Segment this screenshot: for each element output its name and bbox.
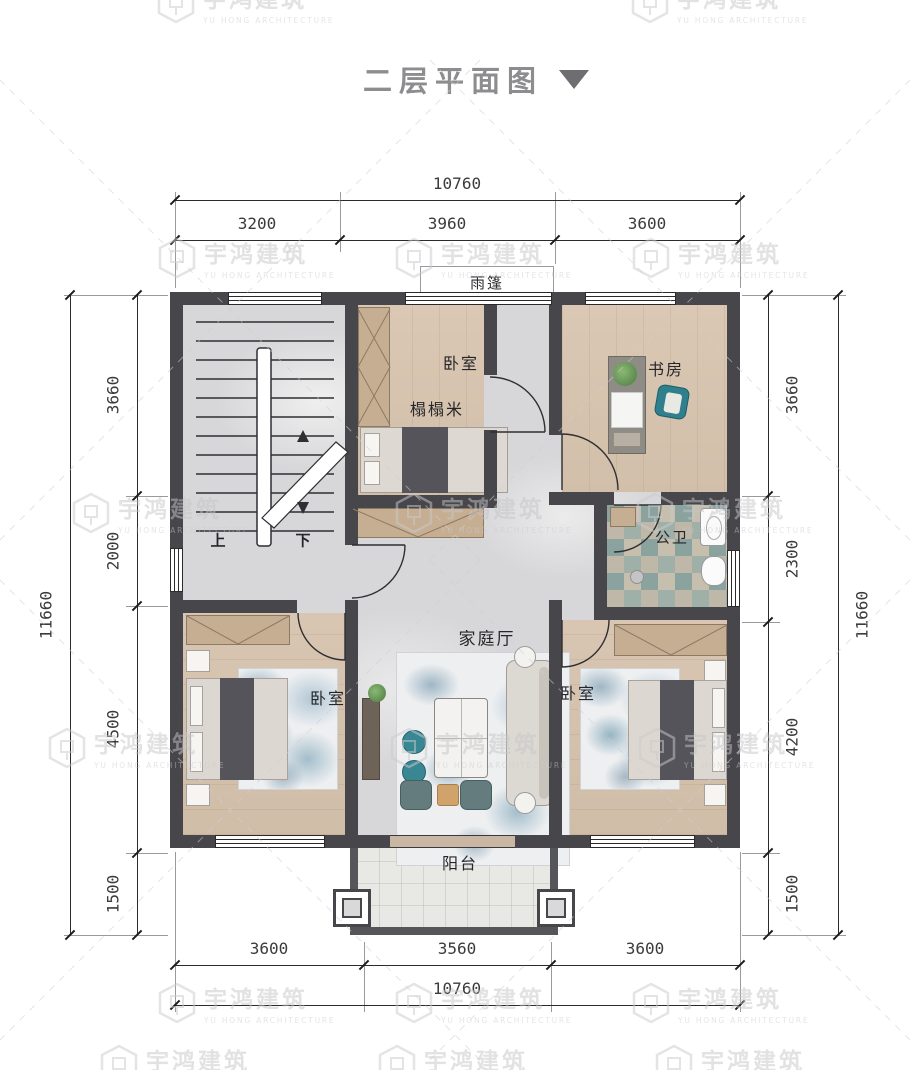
bathroom-sink <box>700 508 726 546</box>
wall-interior <box>549 600 562 835</box>
dim-label: 4500 <box>104 710 123 749</box>
watermark-subtitle: YU HONG ARCHITECTURE <box>678 271 809 280</box>
desk-plant <box>613 362 637 386</box>
dim-label: 3660 <box>104 376 123 415</box>
extension-line <box>742 496 780 497</box>
desk-tray <box>613 432 641 447</box>
window <box>170 548 183 592</box>
watermark-name: 宇鸿建筑 <box>701 1042 832 1070</box>
extension-line <box>340 192 341 252</box>
sofa <box>506 660 554 806</box>
tv-console <box>362 698 380 780</box>
watermark: 宇鸿建筑YU HONG ARCHITECTURE <box>158 235 335 280</box>
watermark: 宇鸿建筑YU HONG ARCHITECTURE <box>632 980 809 1025</box>
shower-head <box>630 570 644 584</box>
yuhong-logo-icon <box>632 982 670 1024</box>
toilet <box>701 556 726 586</box>
extension-line <box>742 295 846 296</box>
watermark: 宇鸿建筑YU HONG ARCHITECTURE <box>158 980 335 1025</box>
tatami-bed-pillow <box>364 433 380 457</box>
armchair <box>460 780 492 810</box>
right-bed-blanket <box>660 680 694 780</box>
nightstand <box>186 784 210 806</box>
watermark-name: 宇鸿建筑 <box>424 1042 555 1070</box>
watermark: 宇鸿建筑YU HONG ARCHITECTURE <box>395 980 572 1025</box>
yuhong-logo-icon <box>655 1044 693 1070</box>
desk-papers <box>611 392 643 428</box>
room-label-study: 书房 <box>648 356 684 380</box>
watermark-name: 宇鸿建筑 <box>677 0 808 14</box>
extension-line <box>364 942 365 1012</box>
watermark: 宇鸿建筑YU HONG ARCHITECTURE <box>655 1042 832 1070</box>
balcony-column-core <box>546 898 566 918</box>
room-label-bedroom-right: 卧室 <box>560 680 596 704</box>
hall-closet <box>352 508 484 538</box>
dim-label: 1500 <box>104 875 123 914</box>
wall-interior <box>484 430 497 495</box>
stair-label-down: 下 <box>295 530 312 551</box>
plant <box>368 684 386 702</box>
balcony-wall <box>350 927 558 935</box>
dim-label: 3600 <box>250 939 289 958</box>
watermark-name: 宇鸿建筑 <box>146 1042 277 1070</box>
extension-line <box>742 853 780 854</box>
pouf <box>402 730 426 754</box>
wall-interior <box>549 305 562 435</box>
dimension-line <box>175 200 740 201</box>
right-bedroom-wardrobe <box>614 624 727 656</box>
dimension-line <box>175 965 740 966</box>
watermark-name: 宇鸿建筑 <box>204 980 335 1014</box>
room-label-balcony: 阳台 <box>442 850 478 874</box>
dim-label-bottom-total: 10760 <box>433 979 481 998</box>
nightstand <box>704 660 726 682</box>
wall-interior <box>183 600 297 613</box>
wall-bathroom-south <box>594 607 740 620</box>
window <box>405 292 552 305</box>
extension-line <box>742 935 846 936</box>
window <box>727 550 740 607</box>
side-table <box>514 792 536 814</box>
pillow <box>190 732 203 772</box>
room-label-family-hall: 家庭厅 <box>459 625 516 650</box>
watermark-subtitle: YU HONG ARCHITECTURE <box>677 16 808 25</box>
page-title-text: 二层平面图 <box>363 58 543 100</box>
page-title: 二层平面图 <box>363 58 589 100</box>
nightstand <box>704 784 726 806</box>
watermark-subtitle: YU HONG ARCHITECTURE <box>441 1016 572 1025</box>
balcony-column <box>537 889 575 927</box>
side-table <box>514 646 536 668</box>
extension-line <box>740 852 741 1012</box>
dim-label-left-total: 11660 <box>37 591 56 639</box>
floor-plan-page: 宇鸿建筑YU HONG ARCHITECTURE 宇鸿建筑YU HONG ARC… <box>0 0 910 1070</box>
pillow <box>190 686 203 726</box>
extension-line <box>126 853 168 854</box>
watermark: 宇鸿建筑YU HONG ARCHITECTURE <box>157 0 334 25</box>
wall-bathroom-west <box>594 505 607 620</box>
yuhong-logo-icon <box>631 0 669 24</box>
room-label-bathroom: 公卫 <box>655 527 689 548</box>
dimension-line <box>70 295 71 935</box>
wall-interior <box>345 495 497 508</box>
yuhong-logo-icon <box>157 0 195 24</box>
watermark-name: 宇鸿建筑 <box>203 0 334 14</box>
wall-interior <box>345 600 358 835</box>
watermark: 宇鸿建筑YU HONG ARCHITECTURE <box>631 0 808 25</box>
yuhong-logo-icon <box>632 237 670 279</box>
yuhong-logo-icon <box>158 237 196 279</box>
dimension-line <box>175 240 740 241</box>
wall-interior <box>345 305 358 545</box>
dim-label-right-total: 11660 <box>853 591 872 639</box>
watermark: 宇鸿建筑YU HONG ARCHITECTURE <box>378 1042 555 1070</box>
dim-label: 3560 <box>438 939 477 958</box>
dimension-line <box>175 1005 740 1006</box>
study-chair <box>653 383 690 420</box>
canopy-label: 雨篷 <box>470 272 504 293</box>
extension-line <box>742 622 780 623</box>
yuhong-logo-icon <box>100 1044 138 1070</box>
yuhong-logo-icon <box>48 727 86 769</box>
extension-line <box>175 852 176 1012</box>
sink-bowl <box>706 516 722 540</box>
room-label-bedroom-top: 卧室 <box>443 350 479 374</box>
extension-line <box>555 192 556 264</box>
sofa-backrest <box>539 667 549 799</box>
dim-label: 3600 <box>628 214 667 233</box>
watermark-subtitle: YU HONG ARCHITECTURE <box>203 16 334 25</box>
dim-label: 3660 <box>783 376 802 415</box>
dim-label: 2000 <box>104 532 123 571</box>
dim-label: 3200 <box>238 214 277 233</box>
window <box>228 292 322 305</box>
dim-label: 3600 <box>626 939 665 958</box>
balcony-column <box>333 889 371 927</box>
balcony-door-sill <box>390 835 515 848</box>
window <box>590 835 695 848</box>
dim-label: 1500 <box>783 875 802 914</box>
watermark-subtitle: YU HONG ARCHITECTURE <box>204 1016 335 1025</box>
extension-line <box>64 295 168 296</box>
armchair <box>400 780 432 810</box>
left-bed-blanket <box>220 678 254 780</box>
wall-interior <box>661 492 740 505</box>
dimension-line <box>137 295 138 935</box>
small-table <box>437 784 459 806</box>
dim-label-top-total: 10760 <box>433 174 481 193</box>
wall-interior <box>549 492 614 505</box>
dimension-line <box>838 295 839 935</box>
dim-label: 4200 <box>783 718 802 757</box>
extension-line <box>126 496 168 497</box>
watermark-name: 宇鸿建筑 <box>678 980 809 1014</box>
watermark-subtitle: YU HONG ARCHITECTURE <box>678 1016 809 1025</box>
dim-label: 3960 <box>428 214 467 233</box>
extension-line <box>126 606 168 607</box>
study-chair-cushion <box>663 392 682 414</box>
chevron-down-icon[interactable] <box>559 70 589 89</box>
dim-label: 2300 <box>783 540 802 579</box>
pillow <box>712 732 725 772</box>
coffee-table <box>434 698 488 778</box>
wall-interior <box>484 305 497 375</box>
stair-label-up: 上 <box>210 530 227 551</box>
watermark: 宇鸿建筑YU HONG ARCHITECTURE <box>100 1042 277 1070</box>
room-label-tatami: 榻榻米 <box>410 396 464 420</box>
dimension-line <box>768 295 769 935</box>
watermark: 宇鸿建筑YU HONG ARCHITECTURE <box>632 235 809 280</box>
tatami-bed-blanket <box>402 427 448 493</box>
tatami-bed-pillow <box>364 461 380 485</box>
room-label-bedroom-left: 卧室 <box>310 685 346 709</box>
extension-line <box>64 935 168 936</box>
extension-line <box>551 942 552 1012</box>
yuhong-logo-icon <box>72 492 110 534</box>
nightstand <box>186 650 210 672</box>
left-bedroom-wardrobe <box>186 615 290 645</box>
yuhong-logo-icon <box>395 982 433 1024</box>
bathroom-vanity <box>610 507 636 527</box>
window <box>215 835 325 848</box>
yuhong-logo-icon <box>378 1044 416 1070</box>
balcony-column-core <box>342 898 362 918</box>
window <box>585 292 676 305</box>
watermark-subtitle: YU HONG ARCHITECTURE <box>204 271 335 280</box>
pillow <box>712 688 725 728</box>
tatami-wardrobe <box>358 307 390 427</box>
